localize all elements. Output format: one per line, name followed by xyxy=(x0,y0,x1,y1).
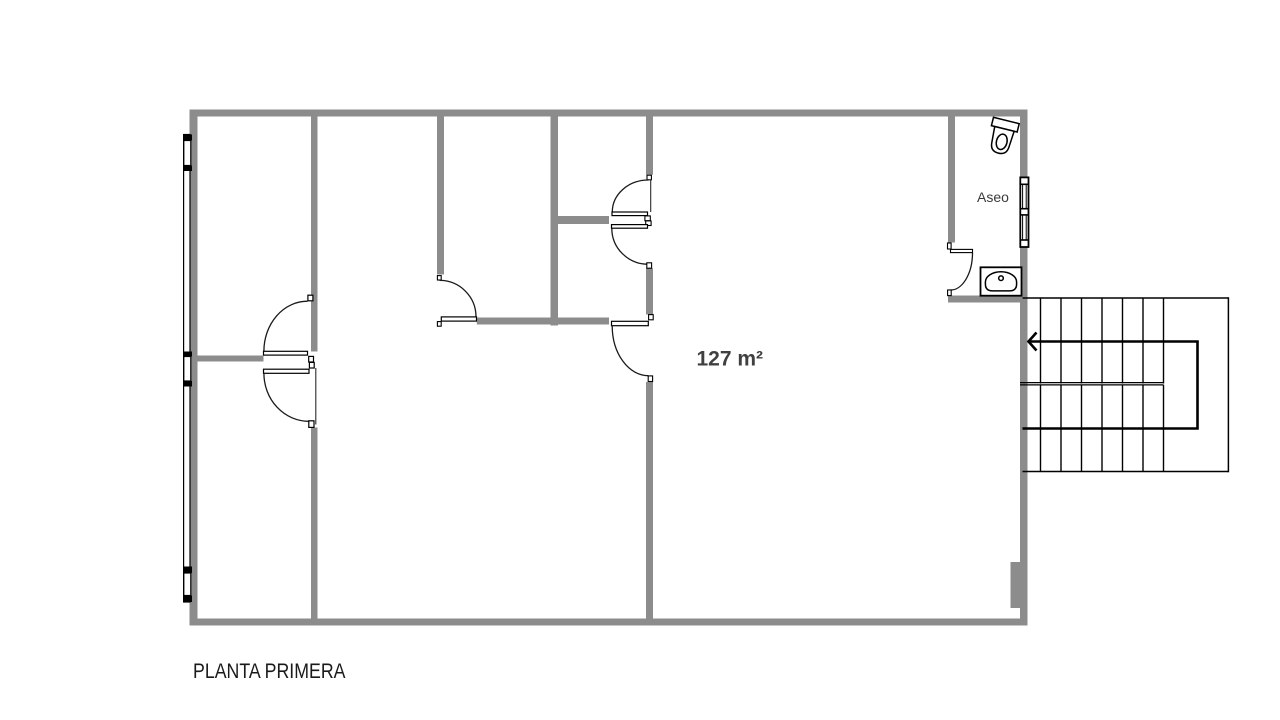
svg-text:Aseo: Aseo xyxy=(977,189,1009,205)
svg-text:PLANTA PRIMERA: PLANTA PRIMERA xyxy=(193,660,346,684)
svg-text:127 m²: 127 m² xyxy=(697,348,764,371)
